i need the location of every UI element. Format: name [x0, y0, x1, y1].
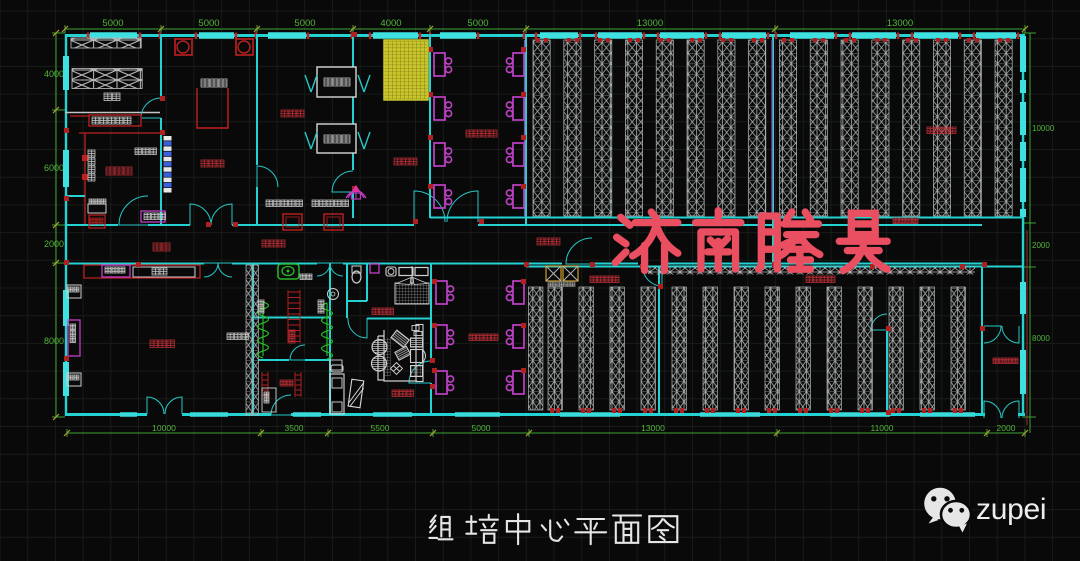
svg-text:5000: 5000: [472, 423, 491, 433]
svg-text:13000: 13000: [637, 18, 663, 29]
svg-text:8000: 8000: [1032, 334, 1050, 343]
svg-text:10000: 10000: [1032, 124, 1055, 133]
svg-text:4000: 4000: [380, 18, 401, 29]
svg-text:2000: 2000: [997, 423, 1016, 433]
svg-text:4000: 4000: [44, 69, 64, 79]
svg-text:zupei: zupei: [976, 493, 1046, 526]
svg-text:3500: 3500: [285, 423, 304, 433]
svg-text:5000: 5000: [467, 18, 488, 29]
svg-text:5500: 5500: [371, 423, 390, 433]
svg-text:5000: 5000: [294, 18, 315, 29]
svg-text:11000: 11000: [870, 423, 893, 433]
svg-text:10000: 10000: [152, 423, 176, 433]
svg-text:5000: 5000: [102, 18, 123, 29]
svg-text:5000: 5000: [198, 18, 219, 29]
svg-text:2000: 2000: [44, 239, 64, 249]
svg-text:13000: 13000: [887, 18, 913, 29]
svg-text:8000: 8000: [44, 336, 64, 346]
svg-text:2000: 2000: [1032, 241, 1050, 250]
svg-text:6000: 6000: [44, 163, 64, 173]
svg-text:13000: 13000: [641, 423, 665, 433]
